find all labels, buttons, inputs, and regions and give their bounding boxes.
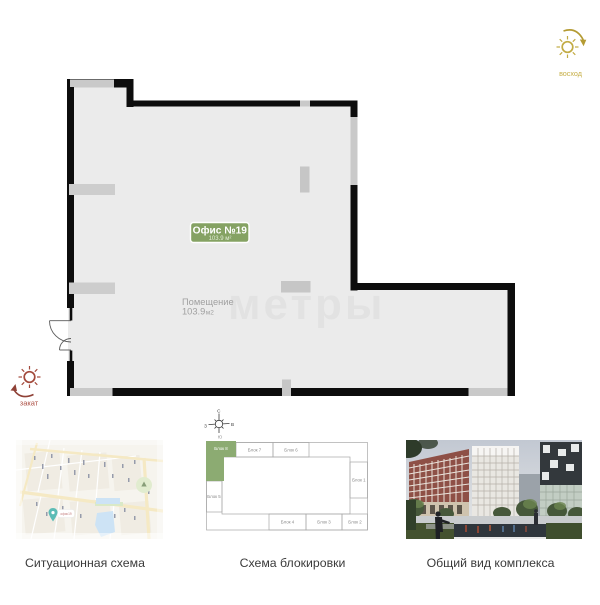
svg-text:Помещение: Помещение bbox=[182, 297, 234, 307]
svg-text:В: В bbox=[231, 422, 234, 427]
svg-text:Блок 2: Блок 2 bbox=[348, 520, 362, 525]
svg-text:Блок 5: Блок 5 bbox=[207, 494, 221, 499]
svg-text:Блок 4: Блок 4 bbox=[281, 520, 295, 525]
svg-text:Блок 7: Блок 7 bbox=[248, 448, 262, 453]
svg-text:Блок 1: Блок 1 bbox=[352, 478, 366, 483]
svg-text:закат: закат bbox=[20, 399, 39, 408]
svg-text:С: С bbox=[217, 409, 221, 414]
svg-text:103.9 м²: 103.9 м² bbox=[209, 236, 232, 242]
svg-text:Блок 3: Блок 3 bbox=[317, 520, 331, 525]
svg-text:Общий вид комплекса: Общий вид комплекса bbox=[427, 556, 555, 570]
svg-text:восход: восход bbox=[559, 69, 583, 78]
svg-text:Ситуационная схема: Ситуационная схема bbox=[25, 556, 145, 570]
svg-text:Ю: Ю bbox=[218, 435, 223, 440]
svg-text:Офис №19: Офис №19 bbox=[193, 224, 248, 236]
svg-text:Блок 6: Блок 6 bbox=[284, 448, 298, 453]
svg-text:З: З bbox=[204, 424, 207, 429]
svg-text:Блок 8: Блок 8 bbox=[214, 446, 228, 451]
svg-text:Схема блокировки: Схема блокировки bbox=[240, 556, 346, 570]
